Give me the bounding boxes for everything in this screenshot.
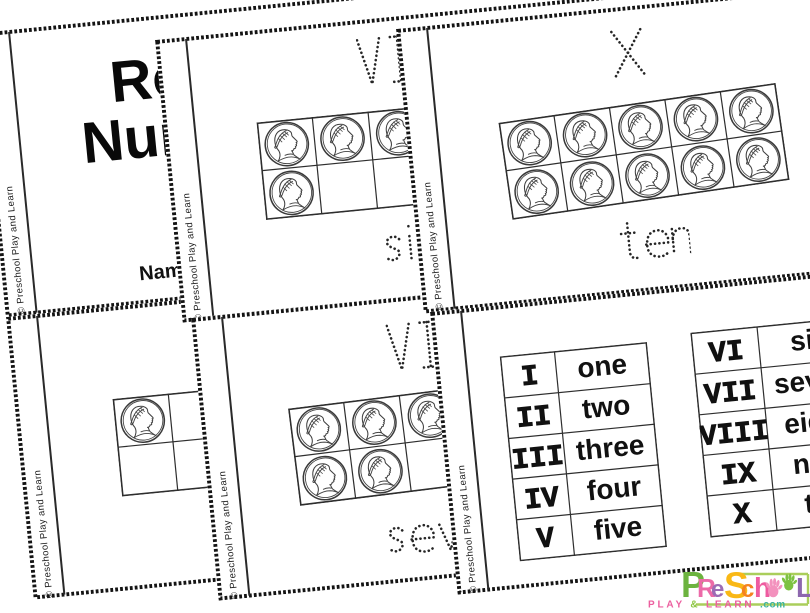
svg-text:IX: IX <box>719 457 757 493</box>
svg-text:L: L <box>796 572 810 603</box>
svg-text:VII: VII <box>703 375 758 413</box>
svg-text:one: one <box>576 348 629 384</box>
svg-text:five: five <box>592 510 643 546</box>
svg-text:four: four <box>585 470 642 506</box>
svg-text:seven: seven <box>772 361 810 400</box>
svg-text:ten: ten <box>803 484 810 519</box>
svg-text:six: six <box>789 322 810 357</box>
svg-text:PLAY & LEARN .com: PLAY & LEARN .com <box>648 600 786 609</box>
svg-text:VI: VI <box>707 335 745 371</box>
svg-text:VIII: VIII <box>698 415 771 455</box>
svg-text:I: I <box>520 360 541 395</box>
svg-text:IV: IV <box>523 481 561 517</box>
svg-text:V: V <box>535 522 556 557</box>
svg-text:nine: nine <box>791 444 810 480</box>
svg-text:III: III <box>510 440 565 478</box>
svg-text:II: II <box>515 400 553 436</box>
svg-text:eight: eight <box>783 403 810 440</box>
svg-text:two: two <box>581 389 632 425</box>
svg-text:X: X <box>732 498 753 533</box>
svg-text:three: three <box>575 429 646 467</box>
